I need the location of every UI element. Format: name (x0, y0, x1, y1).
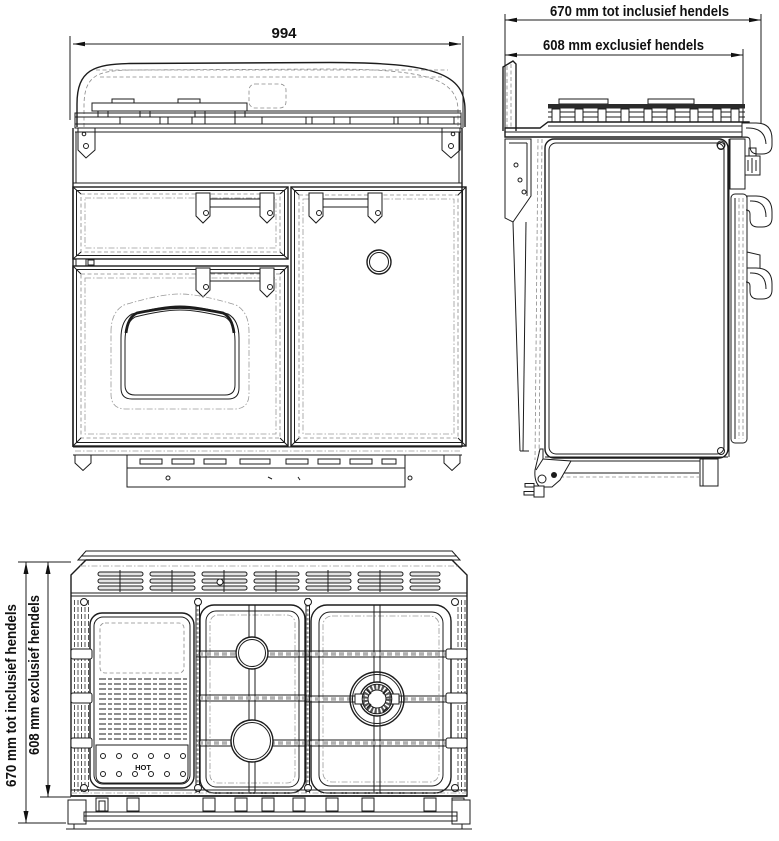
svg-text:670 mm tot inclusief hendels: 670 mm tot inclusief hendels (550, 3, 729, 20)
svg-text:HOT: HOT (135, 763, 151, 772)
svg-text:670 mm tot inclusief hendels: 670 mm tot inclusief hendels (3, 604, 20, 787)
svg-text:994: 994 (271, 25, 297, 42)
svg-text:608 mm exclusief hendels: 608 mm exclusief hendels (26, 595, 43, 755)
svg-text:608 mm exclusief hendels: 608 mm exclusief hendels (543, 37, 704, 54)
